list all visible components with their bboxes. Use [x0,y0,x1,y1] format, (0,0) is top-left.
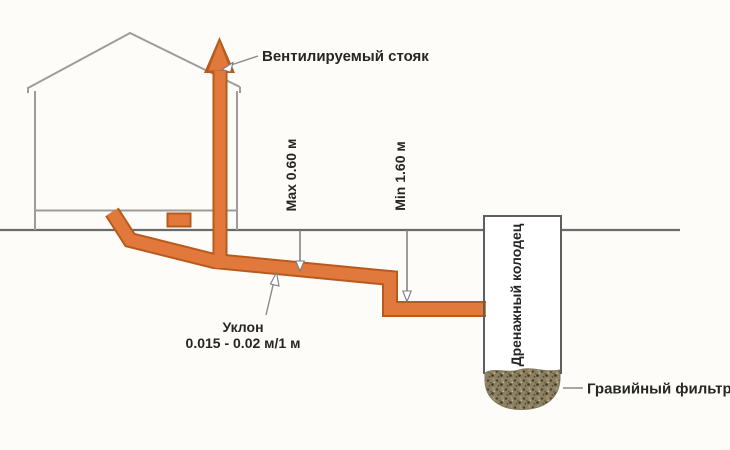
vent-stack-pipe [215,71,226,268]
diagram-canvas: Max 0.60 м Min 1.60 м Вентилируемый стоя… [0,0,730,450]
vent-stack-label: Вентилируемый стояк [262,48,429,65]
slope-label-value: 0.015 - 0.02 м/1 м [186,335,301,351]
max-depth-label: Max 0.60 м [283,139,299,212]
min-depth-label: Min 1.60 м [392,141,408,211]
drain-well-label: Дренажный колодец [508,223,524,366]
sewer-scheme-diagram: Max 0.60 м Min 1.60 м Вентилируемый стоя… [0,0,730,450]
slope-label-title: Уклон [222,319,263,335]
fixture-box [169,215,190,226]
gravel-filter-callout: Гравийный фильтр [563,381,730,398]
gravel-filter-label: Гравийный фильтр [587,381,730,398]
